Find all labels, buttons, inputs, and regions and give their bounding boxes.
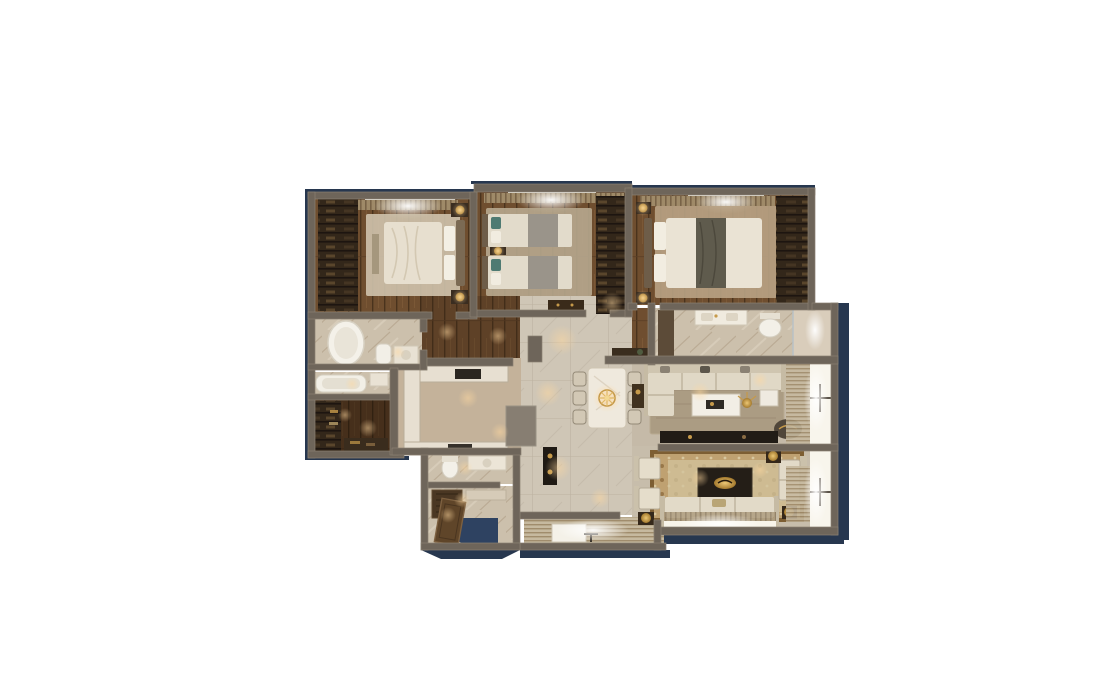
brass-lamp (768, 451, 778, 461)
tub-basin (334, 327, 358, 359)
spot-light (691, 469, 709, 487)
sofa-arm (781, 362, 786, 392)
wall-segment (421, 448, 428, 550)
lamp-glow (635, 200, 651, 216)
headboard (644, 218, 652, 288)
lamp-glow (491, 244, 505, 258)
wardrobe (776, 196, 809, 304)
marble-ledge (466, 490, 506, 500)
bath-cabinet (658, 310, 674, 356)
throw-pillow (712, 499, 726, 507)
wall-segment (308, 312, 432, 319)
table-tray (706, 400, 724, 409)
shadow-bottom-entry (421, 550, 520, 559)
spot-light (752, 372, 768, 388)
chair-seat (639, 458, 660, 479)
wardrobe (318, 199, 358, 311)
chair (573, 410, 586, 424)
throw-pillow (660, 366, 670, 373)
shadow-top-master (305, 189, 477, 192)
closet-shelving (315, 401, 341, 451)
wall-segment (628, 188, 815, 195)
twin-bed-2 (482, 256, 572, 289)
sink (483, 459, 492, 468)
room-master-bedroom (318, 192, 468, 311)
side-table-white (760, 390, 778, 406)
tv-console (660, 431, 778, 443)
shadow-bottom-family (654, 535, 844, 544)
wall-segment (520, 512, 620, 519)
wall-segment (308, 192, 477, 199)
spot-light (391, 345, 405, 359)
chair-back (634, 456, 639, 481)
shadow-top-b3 (628, 185, 815, 188)
wall-stub (528, 336, 542, 362)
wall-segment (428, 482, 500, 488)
spot-light (345, 377, 359, 391)
window-light (804, 364, 828, 432)
wall-segment (831, 303, 838, 535)
shadow-right (838, 303, 849, 540)
wall-segment (308, 451, 404, 458)
spot-light (440, 507, 456, 523)
teal-pillow (491, 259, 501, 271)
wall-segment (474, 310, 586, 317)
toilet-tank (442, 456, 458, 462)
wall-segment (421, 543, 520, 550)
wall-segment (470, 192, 477, 317)
twin-bed-1 (482, 214, 572, 247)
chair-back (634, 486, 639, 511)
toilet (376, 344, 391, 364)
gold-tap (714, 314, 717, 317)
spot-light (438, 323, 456, 341)
side-table (632, 384, 644, 408)
wall-segment (520, 543, 666, 550)
spot-light (489, 327, 507, 345)
gold-floral-decor (742, 398, 752, 408)
sink (370, 373, 388, 386)
spot-light (454, 492, 470, 508)
headboard (482, 256, 488, 289)
shadow-top-kids (471, 181, 632, 184)
armchair (634, 486, 660, 511)
room-living-room (632, 362, 810, 444)
dresser (548, 300, 584, 311)
pillow (654, 222, 666, 250)
bonsai-decor (637, 349, 643, 355)
headboard (456, 220, 465, 286)
spot-light (535, 380, 561, 406)
wall-segment (308, 394, 397, 400)
pillow (444, 255, 455, 280)
console-decor (742, 435, 746, 439)
blanket (528, 256, 558, 289)
chair (573, 391, 586, 405)
wall-segment (474, 184, 632, 192)
spot-light (457, 460, 473, 476)
wall-segment (654, 527, 838, 535)
wall-segment (605, 356, 838, 364)
cooktop (455, 369, 481, 379)
sink (701, 313, 713, 321)
console-decor (688, 435, 692, 439)
throw-pillow (700, 366, 710, 373)
floorplan-render (0, 0, 1096, 693)
gold-decor (710, 402, 714, 406)
toilet-tank (760, 313, 780, 319)
wall-segment (625, 188, 632, 317)
headboard (482, 214, 488, 247)
sink (726, 313, 738, 321)
spot-light (458, 388, 478, 408)
gold-bowl (714, 477, 736, 489)
wall-segment (308, 364, 427, 370)
spot-light (590, 488, 610, 508)
room-bedroom-3 (636, 188, 809, 304)
knob (571, 304, 574, 307)
shadow-left (305, 192, 308, 458)
spot-light (545, 455, 571, 481)
chair (573, 372, 586, 386)
lamp-glow (452, 289, 468, 305)
shadow-bottom-balcony (520, 550, 670, 558)
wall-segment (392, 448, 521, 455)
teal-pillow (491, 217, 501, 229)
pillow (491, 273, 501, 285)
spot-light (359, 419, 377, 437)
wall-segment (427, 358, 513, 366)
peninsula-block (506, 406, 536, 446)
wall-segment (658, 444, 838, 451)
armchair (634, 456, 660, 481)
chair-seat (639, 488, 660, 509)
wall-segment (660, 303, 815, 310)
pillow (491, 231, 501, 243)
wall-segment (390, 368, 398, 455)
wall-segment (628, 303, 637, 310)
spot-light (601, 292, 623, 314)
window-light (557, 519, 629, 541)
window-light (805, 310, 825, 350)
counter-left (404, 366, 420, 450)
window-light (804, 458, 828, 526)
wall-segment (513, 448, 520, 543)
throw-pillow (740, 366, 750, 373)
chandelier (593, 384, 621, 412)
wall-segment (308, 192, 315, 458)
toilet (759, 319, 781, 337)
blanket (528, 214, 558, 247)
bench (372, 234, 379, 274)
spot-light (690, 382, 710, 402)
dining-chairs-left (573, 372, 586, 424)
pillow (654, 254, 666, 282)
spot-light (338, 408, 352, 422)
chair (628, 410, 641, 424)
pillow (444, 226, 455, 251)
brass-lamp (641, 513, 651, 523)
chair (628, 372, 641, 386)
lamp-glow (452, 202, 468, 218)
wall-segment (808, 188, 815, 310)
lamp-glow (635, 290, 651, 306)
spot-light (547, 325, 577, 355)
wall-segment (420, 350, 427, 370)
gold-decor (636, 390, 641, 395)
shelf-item (350, 441, 360, 444)
spot-light (491, 423, 509, 441)
clothes-item (330, 410, 338, 413)
knob (557, 304, 560, 307)
shelf-item (366, 443, 375, 446)
spot-light (752, 462, 768, 478)
clothes-item (329, 422, 338, 425)
